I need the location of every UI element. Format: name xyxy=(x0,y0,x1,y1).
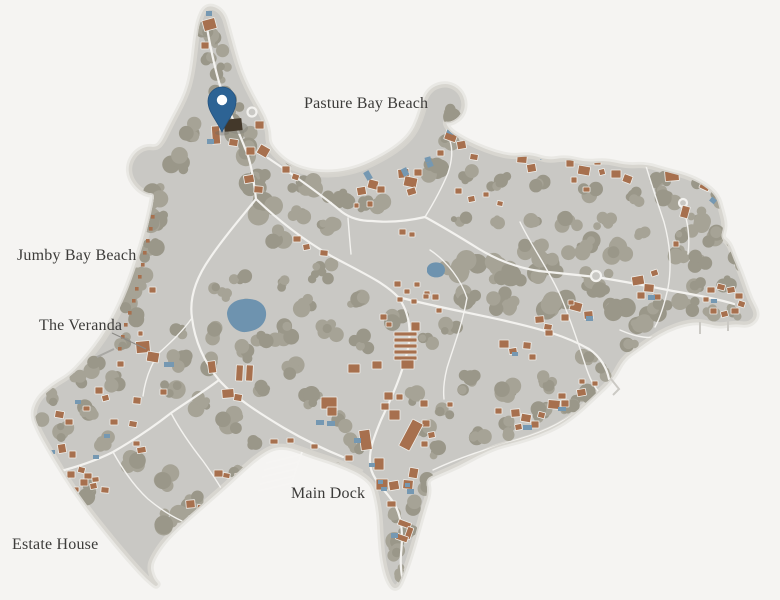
label-jumby-bay-beach: Jumby Bay Beach xyxy=(17,247,136,265)
map-canvas xyxy=(0,0,780,600)
label-pasture-bay-beach: Pasture Bay Beach xyxy=(304,95,428,113)
island-resort-map: Pasture Bay Beach Jumby Bay Beach The Ve… xyxy=(0,0,780,600)
label-the-veranda: The Veranda xyxy=(39,317,122,335)
east-jetty xyxy=(611,379,619,395)
label-estate-house: Estate House xyxy=(12,536,98,554)
label-main-dock: Main Dock xyxy=(291,485,365,503)
small-pond xyxy=(427,262,445,277)
